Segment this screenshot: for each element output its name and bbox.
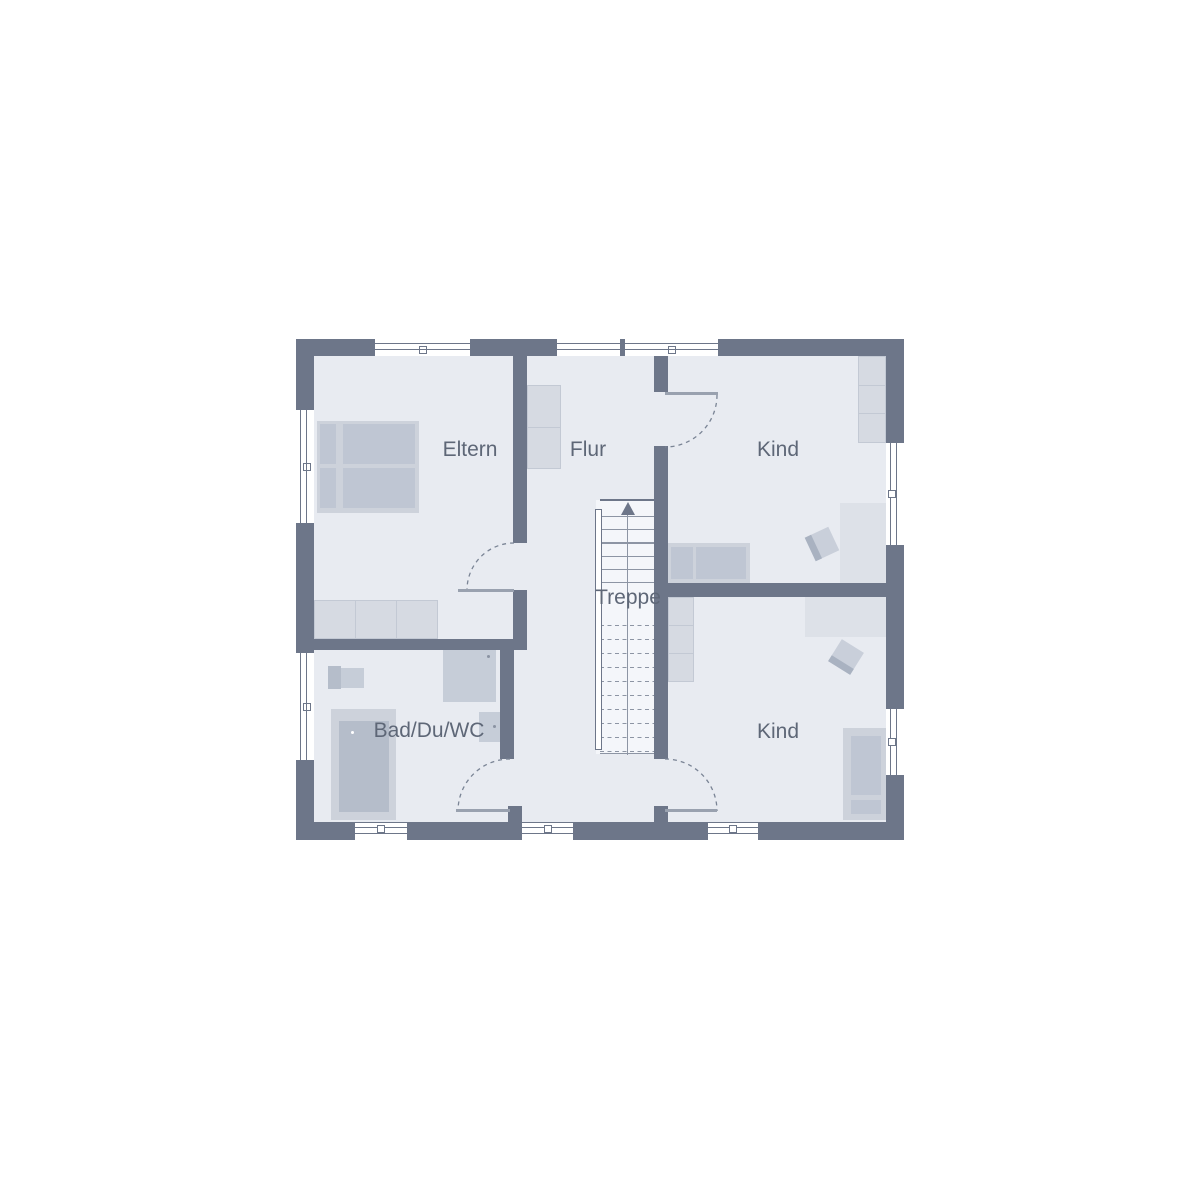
door-arc-kind-bottom	[665, 759, 717, 811]
door-arc-kind-top	[665, 395, 717, 447]
door-leaf-bad	[456, 809, 510, 812]
room-label-treppe: Treppe	[578, 586, 678, 610]
door-leaf-kind-top	[665, 392, 718, 395]
door-leaf-kind-bottom	[665, 809, 717, 812]
room-label-flur: Flur	[548, 438, 628, 462]
door-arc-bad	[458, 759, 510, 811]
room-label-kind-bottom: Kind	[718, 720, 838, 744]
room-label-bad: Bad/Du/WC	[349, 719, 509, 743]
room-label-kind-top: Kind	[718, 438, 838, 462]
floor-plan: Eltern Flur Kind Kind Bad/Du/WC Treppe	[296, 339, 904, 840]
door-leaf-eltern	[458, 589, 514, 592]
room-label-eltern: Eltern	[410, 438, 530, 462]
page: Eltern Flur Kind Kind Bad/Du/WC Treppe	[0, 0, 1200, 1200]
door-arc-eltern	[467, 543, 514, 590]
